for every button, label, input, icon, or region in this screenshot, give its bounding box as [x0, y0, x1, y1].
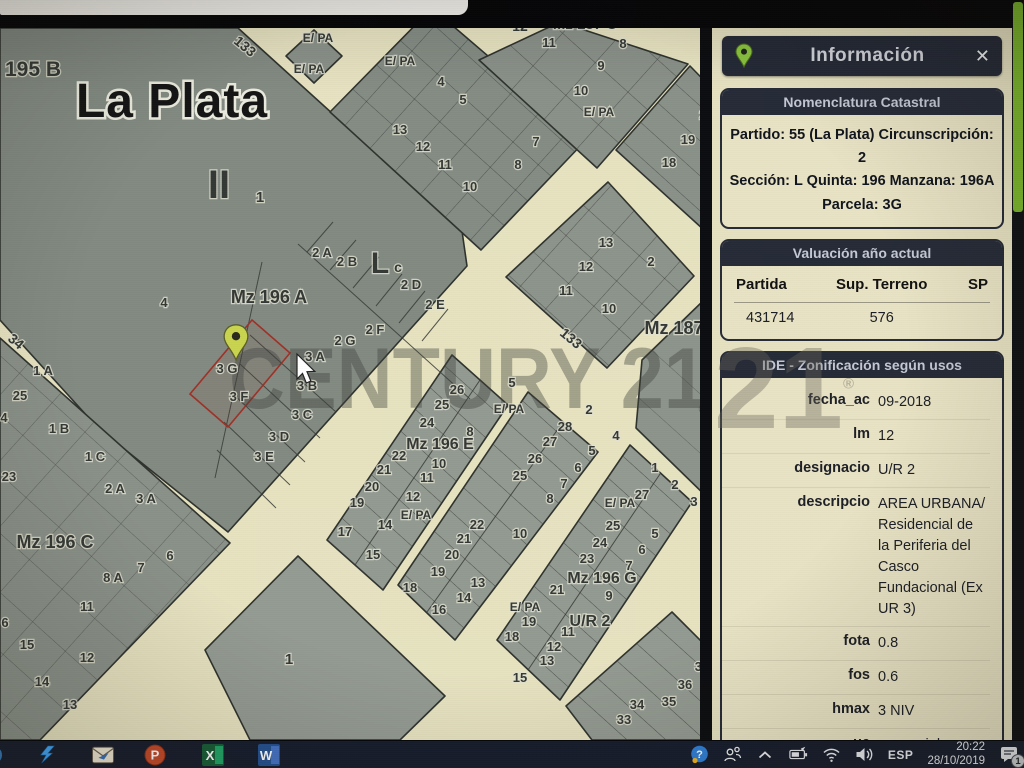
map-label: E/ PA — [294, 62, 325, 76]
word-icon[interactable]: W — [258, 744, 280, 766]
map-label: c — [394, 259, 402, 275]
map-label: 2 — [671, 477, 678, 492]
map-label: 2 A — [312, 245, 332, 260]
map-label: 17 — [338, 524, 352, 539]
ide-row: fecha_ac09-2018 — [722, 386, 990, 419]
map-label: 9 — [597, 58, 604, 73]
map-label: 14 — [378, 517, 393, 532]
map-label: 2 F — [366, 322, 385, 337]
map-label: Mz 196 E — [406, 436, 474, 453]
ide-value: 12 — [878, 426, 990, 447]
location-pin-icon — [734, 43, 754, 69]
map-label: 19 — [522, 614, 536, 629]
map-label: U/R 2 — [570, 613, 611, 630]
map-label: 12 — [547, 639, 561, 654]
map-label: 1 B — [49, 421, 69, 436]
map-label: 24 — [593, 535, 608, 550]
nomenclatura-line: Partido: 55 (La Plata) Circunscripción: … — [728, 124, 996, 170]
map-label: E/ PA — [494, 402, 525, 416]
ide-row: descripcioAREA URBANA/ Residencial de la… — [722, 487, 990, 626]
map-label: 14 — [457, 590, 472, 605]
map-label: E/ PA — [303, 31, 334, 45]
map-label: 3 A — [136, 491, 156, 506]
city-label: La Plata — [76, 75, 268, 128]
map-label: 4 — [612, 428, 620, 443]
help-icon[interactable]: ? — [690, 745, 709, 764]
map-label: 19 — [431, 564, 445, 579]
clock[interactable]: 20:22 28/10/2019 — [927, 741, 985, 768]
map-label: 7 — [625, 558, 632, 573]
map-label: 19 — [681, 132, 695, 147]
ide-key: fos — [722, 667, 870, 688]
ide-value: 09-2018 — [878, 392, 990, 413]
map-label: II — [208, 163, 230, 207]
valuacion-columns: Partida Sup. Terreno SP — [722, 266, 1002, 297]
map-label: 25 — [13, 388, 27, 403]
map-label: 21 — [377, 462, 391, 477]
map-label: 18 — [403, 580, 417, 595]
map-label: 26 — [528, 451, 542, 466]
taskbar-apps: P X W — [0, 741, 280, 768]
map-label: 11 — [561, 624, 575, 639]
powerpoint-icon[interactable]: P — [144, 744, 166, 766]
map-label: E/ PA — [385, 54, 416, 68]
ide-key: lm — [722, 426, 870, 447]
map-label: 13 — [393, 122, 407, 137]
nomenclatura-title: Nomenclatura Catastral — [722, 90, 1002, 115]
map-label: E/ PA — [401, 508, 432, 522]
ide-key: designacio — [722, 460, 870, 481]
ide-row: fota0.8 — [722, 626, 990, 660]
panel-title: Información — [760, 45, 975, 67]
scrollbar-thumb[interactable] — [1013, 2, 1023, 212]
map-label: 6 — [166, 548, 173, 563]
background-window-edge[interactable] — [0, 0, 468, 15]
map-label: E/ PA — [584, 105, 615, 119]
notification-badge: 1 — [1011, 754, 1024, 768]
ide-row: lm12 — [722, 419, 990, 453]
map-label: 2 — [647, 254, 654, 269]
map-label: 12 — [579, 259, 593, 274]
val-sp — [941, 310, 988, 326]
map-label: 24 — [420, 415, 435, 430]
map-label: 20 — [445, 547, 459, 562]
map-label: 3 C — [292, 407, 313, 422]
ide-title: IDE - Zonificación según usos — [722, 353, 1002, 378]
map-label: 34 — [630, 697, 645, 712]
ide-key: fecha_ac — [722, 392, 870, 413]
map-label: 3 G — [217, 361, 238, 376]
map-label: Mz 187 — [644, 318, 703, 338]
map-label: 15 — [20, 637, 34, 652]
cadastral-map[interactable]: CENTURY 21 ® 195 BLa PlataII113313334E/ … — [0, 28, 710, 740]
map-label: 6 — [1, 615, 8, 630]
map-label: 9 — [605, 588, 612, 603]
nomenclatura-line: Parcela: 3G — [728, 194, 996, 217]
map-label: 25 — [513, 468, 527, 483]
map-label: 4 — [0, 410, 8, 425]
map-label: 3 A — [305, 349, 325, 364]
lightning-app-icon[interactable] — [36, 744, 58, 766]
map-label: 6 — [638, 542, 645, 557]
col-sup-terreno: Sup. Terreno — [823, 276, 941, 293]
map-label: L — [371, 247, 389, 280]
map-label: 25 — [606, 518, 620, 533]
map-label: 10 — [602, 301, 616, 316]
nomenclatura-body: Partido: 55 (La Plata) Circunscripción: … — [722, 115, 1002, 227]
map-label: 1 — [651, 460, 658, 475]
panel-header: Información ✕ — [722, 36, 1002, 76]
ide-value: AREA URBANA/ Residencial de la Periferia… — [878, 494, 990, 620]
language-indicator[interactable]: ESP — [888, 748, 914, 762]
map-label: 2 B — [337, 254, 357, 269]
close-icon[interactable]: ✕ — [975, 46, 990, 67]
map-label: 195 B — [5, 58, 61, 81]
map-label: 21 — [457, 531, 471, 546]
map-label: 10 — [513, 526, 527, 541]
ide-value: 0.8 — [878, 633, 990, 654]
map-label: E/ PA — [605, 496, 636, 510]
map-label: 13 — [471, 575, 485, 590]
map-label: 11 — [420, 470, 434, 485]
speaker-icon[interactable] — [855, 745, 874, 764]
map-label: 11 — [542, 35, 556, 50]
map-label: 8 — [466, 424, 473, 439]
map-label: 20 — [365, 479, 379, 494]
ide-value: 0.6 — [878, 667, 990, 688]
map-label: 12 — [512, 28, 528, 34]
map-label: 8 — [619, 36, 626, 51]
map-label: 19 — [350, 495, 364, 510]
map-label: 10 — [574, 83, 588, 98]
map-label: 2 — [585, 402, 592, 417]
map-label: 16 — [432, 602, 446, 617]
map-label: 21 — [550, 582, 564, 597]
map-label: 22 — [392, 448, 406, 463]
map-label: 7 — [137, 560, 144, 575]
map-label: 11 — [438, 157, 452, 172]
time: 20:22 — [927, 741, 985, 755]
map-label: 33 — [617, 712, 631, 727]
people-icon[interactable] — [723, 745, 742, 764]
ide-value: 3 NIV — [878, 701, 990, 722]
map-label: 23 — [2, 469, 16, 484]
top-window-bar — [0, 0, 1024, 28]
map-label: 7 — [532, 134, 539, 149]
ide-value: U/R 2 — [878, 460, 990, 481]
system-tray: ? ESP 20:22 28/10/2019 — [690, 741, 1024, 768]
map-label: 5 — [651, 526, 658, 541]
map-label: 4 — [160, 295, 168, 310]
map-label: 10 — [432, 456, 446, 471]
map-label: 25 — [435, 397, 449, 412]
action-center-icon[interactable]: 1 — [999, 745, 1018, 764]
map-label: 2 A — [105, 481, 125, 496]
nomenclatura-section: Nomenclatura Catastral Partido: 55 (La P… — [720, 88, 1004, 229]
col-sp: SP — [941, 276, 988, 293]
map-label: 5 — [459, 92, 466, 107]
map-label: 2 D — [401, 277, 421, 292]
map-label: 3 E — [254, 449, 274, 464]
map-label: 18 — [505, 629, 519, 644]
ide-section: IDE - Zonificación según usos fecha_ac09… — [720, 351, 1004, 768]
info-panel: Información ✕ Nomenclatura Catastral Par… — [712, 28, 1012, 740]
valuacion-section: Valuación año actual Partida Sup. Terren… — [720, 239, 1004, 341]
map-label: 11 — [80, 599, 94, 614]
taskbar: P X W ? — [0, 740, 1024, 768]
map-label: 14 — [35, 674, 50, 689]
map-label: 1 A — [33, 363, 53, 378]
map-label: Mz 196 C — [16, 532, 93, 552]
map-label: 5 — [588, 443, 595, 458]
map-label: 22 — [470, 517, 484, 532]
map-label: 2 G — [335, 333, 356, 348]
val-partida: 431714 — [736, 310, 823, 326]
map-label: 7 — [560, 476, 567, 491]
map-label: 27 — [543, 434, 557, 449]
partial-start-icon[interactable] — [0, 744, 10, 766]
map-label: 3 — [690, 494, 697, 509]
ide-key: fota — [722, 633, 870, 654]
chevron-up-icon[interactable] — [756, 745, 775, 764]
ide-row: hmax3 NIV — [722, 694, 990, 728]
excel-icon[interactable]: X — [202, 744, 224, 766]
ide-key: descripcio — [722, 494, 870, 620]
ide-row: fos0.6 — [722, 660, 990, 694]
map-label: 27 — [635, 487, 649, 502]
ide-key: hmax — [722, 701, 870, 722]
map-label: 36 — [678, 677, 692, 692]
valuacion-title: Valuación año actual — [722, 241, 1002, 266]
screen: CENTURY 21 ® 195 BLa PlataII113313334E/ … — [0, 0, 1024, 768]
map-label: 10 — [463, 179, 477, 194]
col-partida: Partida — [736, 276, 823, 293]
map-label: 18 — [662, 155, 676, 170]
ide-row: designacioU/R 2 — [722, 453, 990, 487]
map-label: 4 — [437, 74, 445, 89]
map-label: 8 A — [103, 570, 123, 585]
map-label: 3 F — [230, 389, 249, 404]
battery-icon[interactable] — [789, 745, 808, 764]
date: 28/10/2019 — [927, 755, 985, 768]
map-label: 8 — [546, 491, 553, 506]
map-label: 15 — [366, 547, 380, 562]
map-label: 1 C — [85, 449, 106, 464]
map-label: 5 — [508, 375, 515, 390]
map-label: 8 — [514, 157, 521, 172]
map-label: 11 — [559, 283, 573, 298]
map-label: 13 — [63, 697, 77, 712]
map-label: 13 — [540, 653, 554, 668]
map-label: 12 — [416, 139, 430, 154]
wifi-icon[interactable] — [822, 745, 841, 764]
map-label: Mz 196 A — [231, 287, 307, 307]
map-label: 3 D — [269, 429, 289, 444]
nomenclatura-line: Sección: L Quinta: 196 Manzana: 196A — [728, 170, 996, 193]
map-label: E/ PA — [510, 600, 541, 614]
valuacion-values: 431714 576 — [722, 303, 1002, 339]
map-label: 2 E — [425, 297, 445, 312]
ide-body: fecha_ac09-2018lm12designacioU/R 2descri… — [722, 378, 1002, 768]
map-label: 23 — [580, 551, 594, 566]
map-label: 35 — [662, 694, 676, 709]
map-panel-divider — [700, 28, 712, 740]
mail-icon[interactable] — [92, 744, 114, 766]
val-sup-terreno: 576 — [823, 310, 941, 326]
svg-text:P: P — [151, 747, 160, 762]
map-label: 28 — [558, 419, 572, 434]
map-label: 1 — [256, 189, 264, 206]
map-label: 15 — [513, 670, 527, 685]
svg-text:W: W — [260, 748, 273, 763]
map-label: 6 — [574, 460, 581, 475]
map-label: 13 — [599, 235, 613, 250]
map-label: 12 — [406, 489, 420, 504]
map-label: 1 — [285, 651, 293, 668]
svg-text:X: X — [206, 748, 215, 763]
map-label: Mz 187 C — [553, 28, 617, 33]
map-label: 26 — [450, 382, 464, 397]
map-label: 12 — [80, 650, 94, 665]
